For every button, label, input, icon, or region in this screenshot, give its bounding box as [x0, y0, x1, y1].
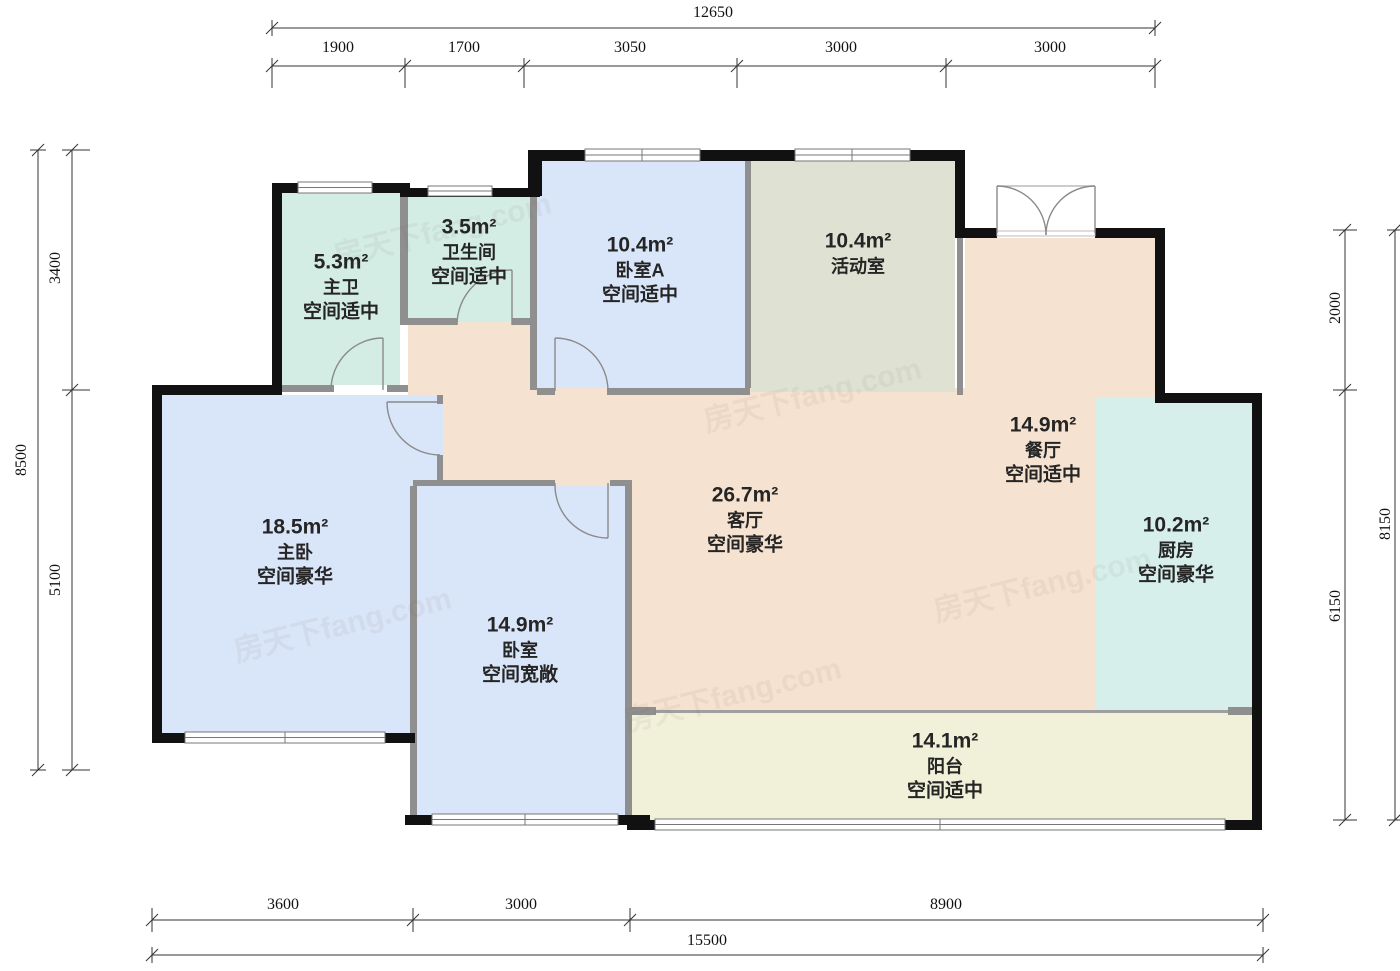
dim-bottom-seg-2: 3000	[505, 896, 537, 914]
room-label-balcony: 14.1m² 阳台 空间适中	[907, 728, 983, 805]
room-label-bedroom-a: 10.4m² 卧室A 空间适中	[602, 232, 678, 309]
room-label-dining-room: 14.9m² 餐厅 空间适中	[1005, 412, 1081, 489]
room-area: 14.9m²	[482, 612, 558, 640]
entry-double-door	[997, 186, 1095, 236]
room-name: 卧室	[482, 639, 558, 663]
room-name: 主卧	[257, 541, 333, 565]
room-desc: 空间适中	[431, 265, 507, 290]
dim-top-seg-2: 1700	[448, 39, 480, 57]
room-area: 14.9m²	[1005, 412, 1081, 440]
dim-bottom-total: 15500	[687, 932, 727, 950]
dim-left-seg-2: 5100	[47, 564, 65, 596]
dim-bottom-seg-3: 8900	[930, 896, 962, 914]
room-desc: 空间豪华	[257, 565, 333, 590]
room-name: 阳台	[907, 755, 983, 779]
room-desc: 空间适中	[907, 779, 983, 804]
room-label-living-room: 26.7m² 客厅 空间豪华	[707, 482, 783, 559]
room-area: 10.2m²	[1138, 512, 1214, 540]
room-name: 客厅	[707, 509, 783, 533]
room-name: 主卫	[303, 276, 379, 300]
room-name: 活动室	[825, 255, 892, 279]
floorplan-drawing	[0, 0, 1400, 971]
room-desc: 空间适中	[1005, 463, 1081, 488]
dim-top-seg-4: 3000	[825, 39, 857, 57]
room-area: 10.4m²	[825, 227, 892, 255]
dim-top-total: 12650	[693, 4, 733, 22]
room-desc: 空间适中	[303, 300, 379, 325]
dim-right-total: 8150	[1377, 508, 1395, 540]
room-desc: 空间适中	[602, 283, 678, 308]
room-label-kitchen: 10.2m² 厨房 空间豪华	[1138, 512, 1214, 589]
dim-right-seg-1: 2000	[1327, 292, 1345, 324]
room-label-bedroom: 14.9m² 卧室 空间宽敞	[482, 612, 558, 689]
room-desc: 空间豪华	[1138, 563, 1214, 588]
dim-left-seg-1: 3400	[47, 252, 65, 284]
room-name: 卧室A	[602, 259, 678, 283]
dim-right-seg-2: 6150	[1327, 590, 1345, 622]
room-label-master-bedroom: 18.5m² 主卧 空间豪华	[257, 514, 333, 591]
room-desc: 空间豪华	[707, 533, 783, 558]
room-area: 26.7m²	[707, 482, 783, 510]
dim-top-seg-3: 3050	[614, 39, 646, 57]
room-label-activity-room: 10.4m² 活动室	[825, 227, 892, 278]
room-label-master-bath: 5.3m² 主卫 空间适中	[303, 249, 379, 326]
room-area: 5.3m²	[303, 249, 379, 277]
room-area: 18.5m²	[257, 514, 333, 542]
room-desc: 空间宽敞	[482, 663, 558, 688]
room-area: 14.1m²	[907, 728, 983, 756]
room-name: 餐厅	[1005, 439, 1081, 463]
room-name: 卫生间	[431, 241, 507, 265]
dim-top-seg-5: 3000	[1034, 39, 1066, 57]
dim-top-seg-1: 1900	[322, 39, 354, 57]
room-area: 10.4m²	[602, 232, 678, 260]
dim-bottom-seg-1: 3600	[267, 896, 299, 914]
floorplan: 房天下fang.com 房天下fang.com 房天下fang.com 房天下f…	[0, 0, 1400, 971]
room-label-bathroom: 3.5m² 卫生间 空间适中	[431, 214, 507, 291]
room-name: 厨房	[1138, 539, 1214, 563]
room-area: 3.5m²	[431, 214, 507, 242]
dim-left-total: 8500	[13, 444, 31, 476]
